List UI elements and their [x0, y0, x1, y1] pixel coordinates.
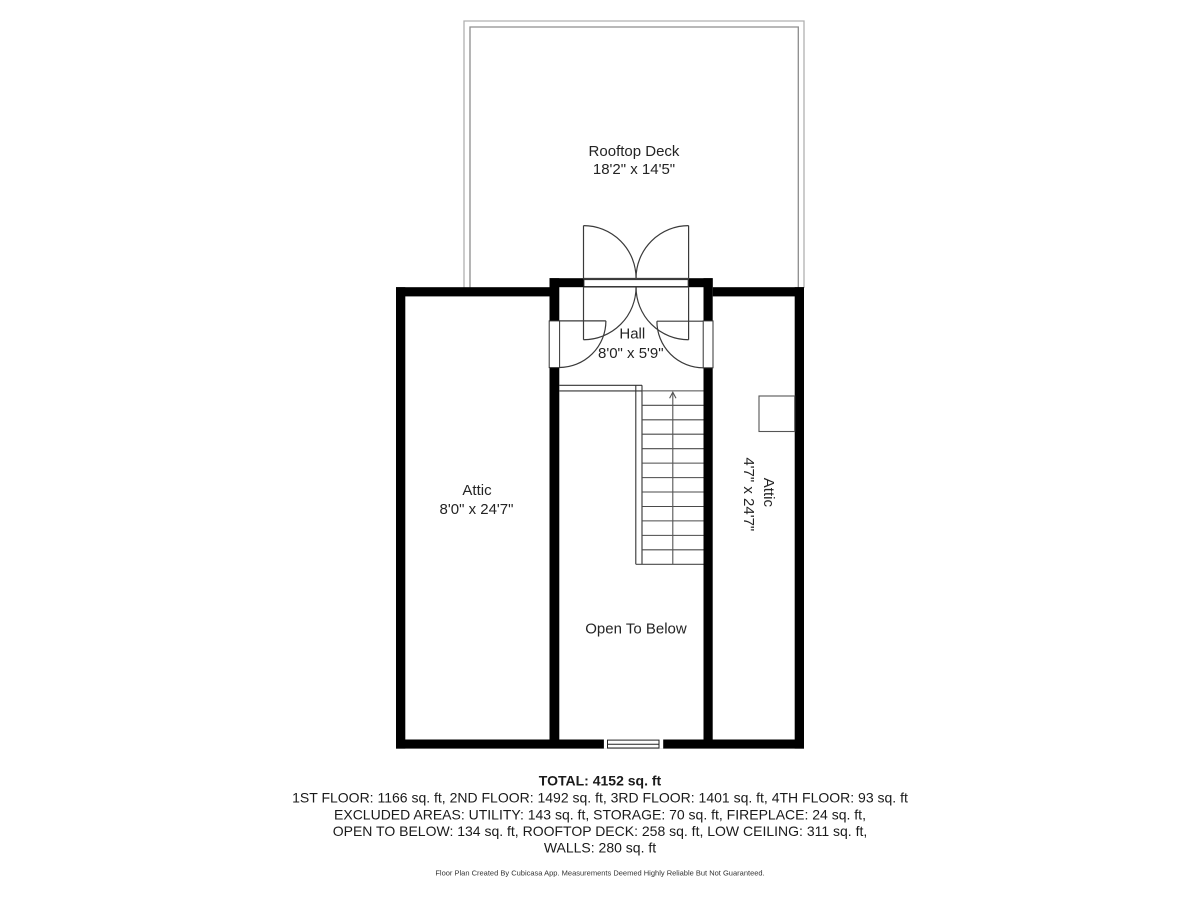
svg-text:1ST FLOOR: 1166 sq. ft, 2ND FL: 1ST FLOOR: 1166 sq. ft, 2ND FLOOR: 1492 …: [292, 789, 908, 805]
svg-text:OPEN TO BELOW: 134 sq. ft, ROO: OPEN TO BELOW: 134 sq. ft, ROOFTOP DECK:…: [333, 823, 868, 839]
svg-text:8'0" x 5'9": 8'0" x 5'9": [598, 345, 664, 362]
svg-text:Attic: Attic: [462, 482, 492, 499]
svg-text:Rooftop Deck: Rooftop Deck: [589, 143, 680, 160]
svg-text:18'2" x 14'5": 18'2" x 14'5": [593, 161, 675, 178]
svg-text:WALLS: 280 sq. ft: WALLS: 280 sq. ft: [544, 840, 656, 856]
svg-text:4'7" x 24'7": 4'7" x 24'7": [740, 457, 757, 531]
svg-text:TOTAL: 4152 sq. ft: TOTAL: 4152 sq. ft: [539, 772, 662, 788]
svg-text:Hall: Hall: [619, 325, 645, 342]
svg-text:Floor Plan Created By Cubicasa: Floor Plan Created By Cubicasa App. Meas…: [435, 868, 764, 877]
svg-text:8'0" x 24'7": 8'0" x 24'7": [440, 501, 514, 518]
svg-text:Open To Below: Open To Below: [585, 621, 687, 638]
svg-text:Attic: Attic: [760, 478, 777, 508]
svg-text:EXCLUDED AREAS: UTILITY: 143 s: EXCLUDED AREAS: UTILITY: 143 sq. ft, STO…: [334, 806, 866, 822]
